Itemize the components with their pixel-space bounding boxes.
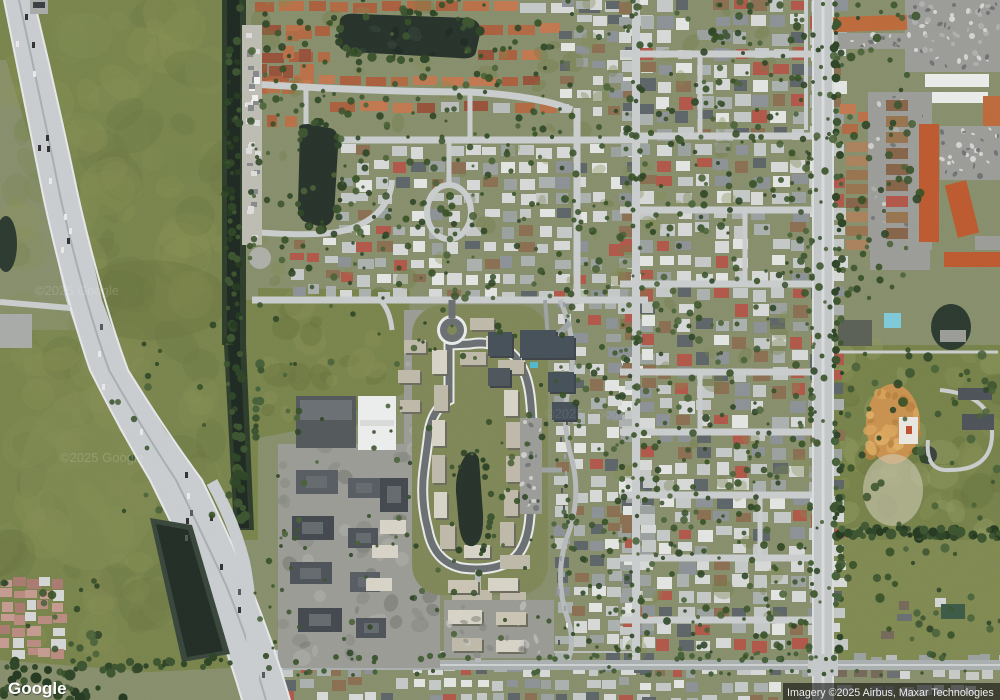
svg-text:©2025 Google: ©2025 Google [545, 406, 629, 421]
svg-text:Imagery ©2025 Airbus, Maxar Te: Imagery ©2025 Airbus, Maxar Technologies [787, 687, 994, 699]
svg-text:Google: Google [8, 679, 67, 698]
svg-text:©2025 Google: ©2025 Google [35, 283, 119, 298]
svg-text:©2025 Google: ©2025 Google [60, 450, 144, 465]
